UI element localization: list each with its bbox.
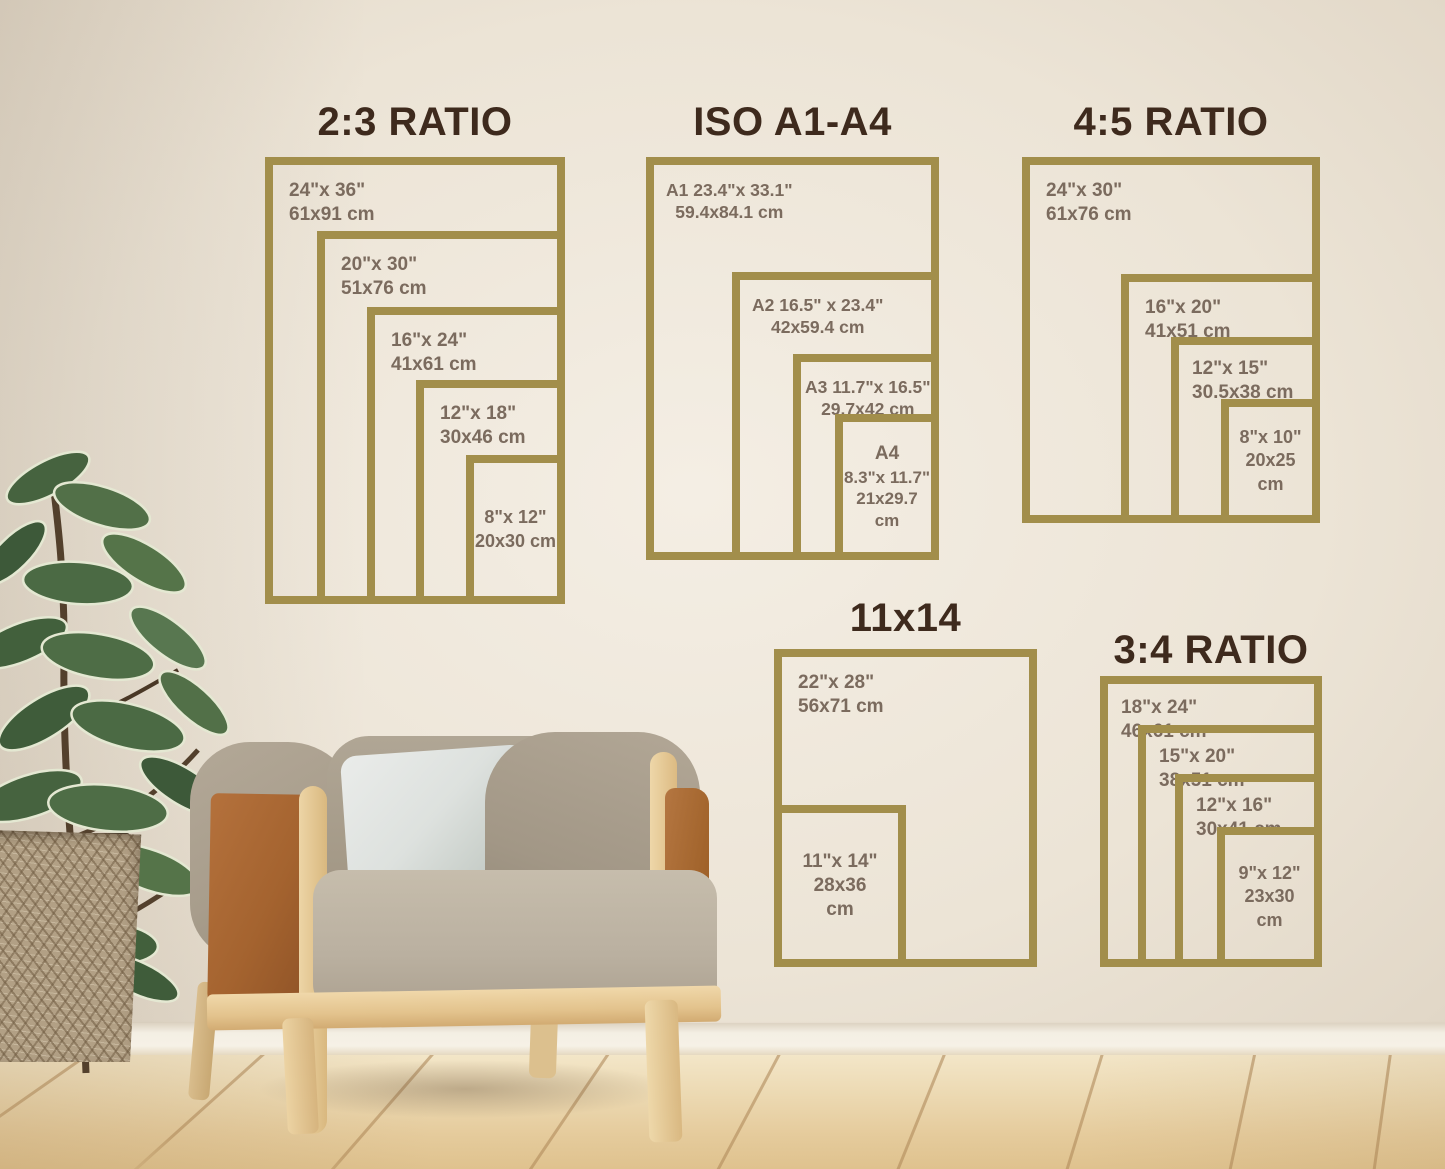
chair-leg xyxy=(645,999,683,1142)
poster-frame-8x10: 8"x 10" 20x25 cm xyxy=(1221,399,1320,523)
frame-size-label: 20"x 30"51x76 cm xyxy=(341,253,427,302)
floor-plank-line xyxy=(1355,1055,1403,1169)
floor-plank-line xyxy=(855,1055,978,1169)
frame-size-label: 16"x 24"41x61 cm xyxy=(391,329,477,378)
group-title-iso-a1-a4: ISO A1-A4 xyxy=(646,102,939,142)
armchair xyxy=(185,730,730,1142)
frame-size-label: 8"x 12"20x30 cm xyxy=(475,506,556,552)
frame-size-label: A4 8.3"x 11.7" 21x29.7 cm xyxy=(844,442,930,532)
woven-basket-planter xyxy=(0,830,146,1062)
frame-size-label: 9"x 12" 23x30 cm xyxy=(1238,862,1300,931)
frame-size-label: 24"x 30"61x76 cm xyxy=(1046,179,1132,228)
chair-leg xyxy=(282,1017,319,1134)
group-title-4-5-ratio: 4:5 RATIO xyxy=(1022,102,1320,142)
poster-frame-8x12: 8"x 12"20x30 cm xyxy=(466,455,565,604)
group-title-3-4-ratio: 3:4 RATIO xyxy=(1100,630,1322,670)
size-guide-mockup: 2:3 RATIO 24"x 36"61x91 cm 20"x 30"51x76… xyxy=(0,0,1445,1169)
frame-size-label: 11"x 14" 28x36 cm xyxy=(802,850,877,923)
group-title-11x14: 11x14 xyxy=(774,598,1037,638)
frame-size-label: A1 23.4"x 33.1"59.4x84.1 cm xyxy=(666,179,793,224)
frame-size-label: 8"x 10" 20x25 cm xyxy=(1239,426,1301,495)
poster-frame-a4: A4 8.3"x 11.7" 21x29.7 cm xyxy=(835,414,939,560)
frame-size-label: 22"x 28"56x71 cm xyxy=(798,671,884,720)
frame-size-label: 12"x 18"30x46 cm xyxy=(440,402,526,451)
group-title-2-3-ratio: 2:3 RATIO xyxy=(265,102,565,142)
poster-frame-9x12: 9"x 12" 23x30 cm xyxy=(1217,827,1322,967)
poster-frame-11x14: 11"x 14" 28x36 cm xyxy=(774,805,906,967)
floor-plank-line xyxy=(1204,1055,1273,1169)
frame-size-label: A2 16.5" x 23.4"42x59.4 cm xyxy=(752,294,883,339)
frame-size-label: 24"x 36"61x91 cm xyxy=(289,179,375,228)
floor-plank-line xyxy=(1032,1055,1128,1169)
